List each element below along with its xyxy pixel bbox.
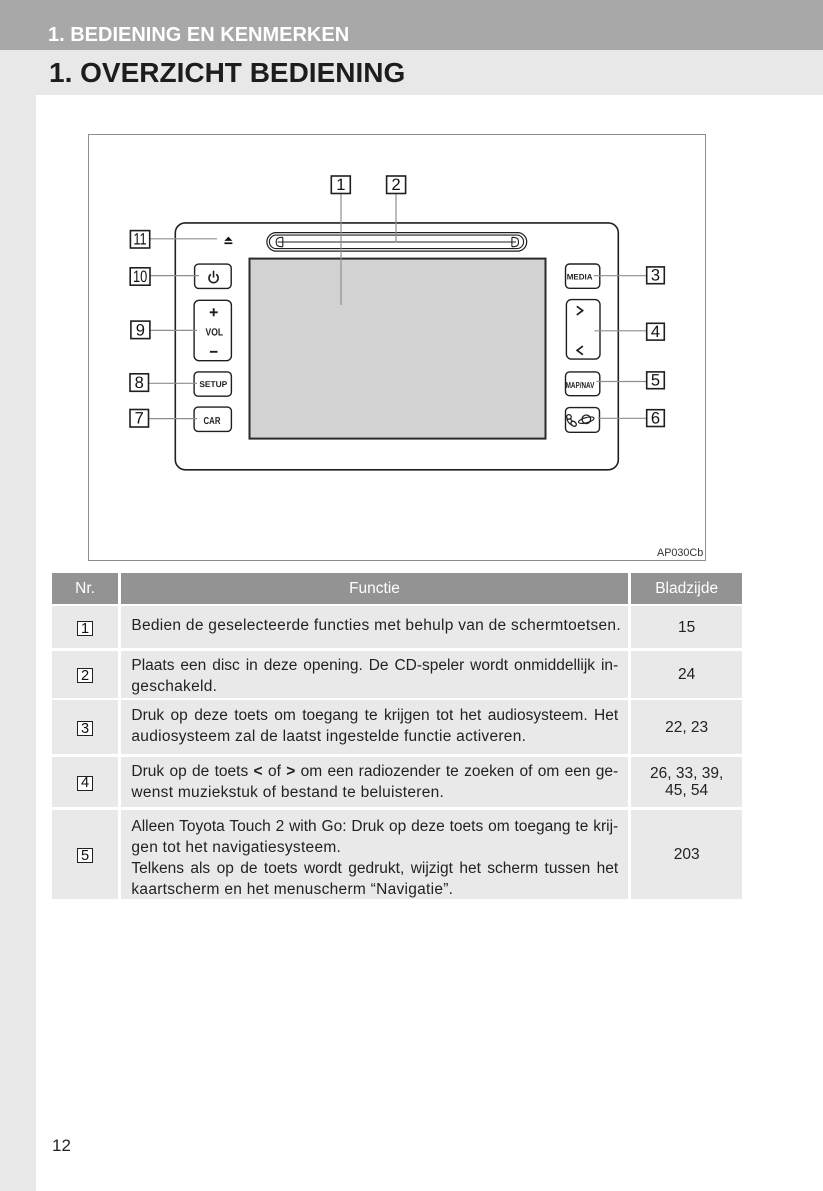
svg-text:CAR: CAR: [204, 416, 222, 427]
svg-text:6: 6: [651, 409, 660, 427]
svg-text:5: 5: [651, 372, 660, 390]
svg-text:MEDIA: MEDIA: [567, 272, 593, 281]
svg-text:SETUP: SETUP: [199, 379, 227, 389]
svg-text:8: 8: [135, 374, 144, 392]
svg-text:1: 1: [336, 176, 345, 194]
svg-text:7: 7: [135, 410, 144, 428]
svg-text:4: 4: [651, 323, 660, 341]
svg-text:2: 2: [392, 176, 401, 194]
svg-text:9: 9: [136, 321, 145, 339]
svg-text:VOL: VOL: [206, 327, 224, 338]
svg-text:3: 3: [651, 267, 660, 285]
svg-text:10: 10: [133, 268, 147, 286]
svg-text:MAP/NAV: MAP/NAV: [566, 380, 595, 390]
svg-text:11: 11: [133, 231, 146, 249]
